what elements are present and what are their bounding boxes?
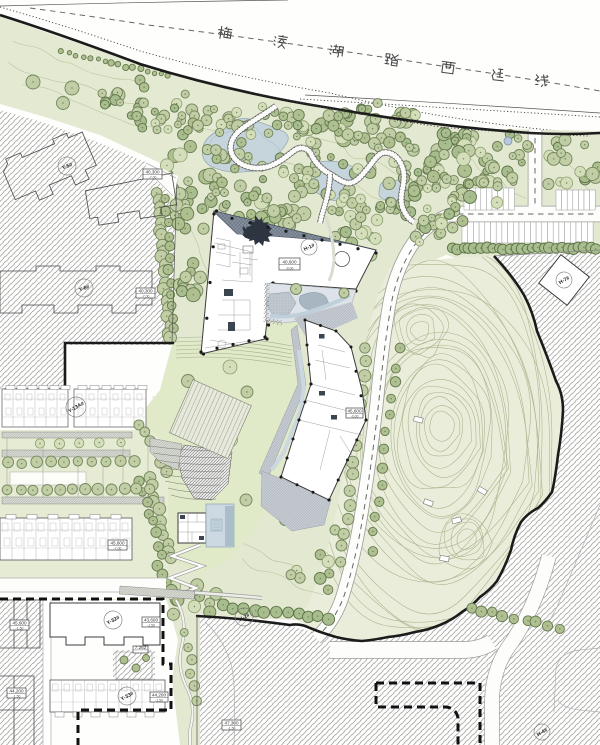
svg-text:-7.00: -7.00: [149, 176, 157, 180]
svg-text:47,300: 47,300: [224, 721, 238, 726]
svg-text:7.262: 7.262: [135, 645, 147, 650]
svg-text:-0.00: -0.00: [286, 266, 294, 270]
svg-text:-1.50: -1.50: [16, 627, 24, 631]
svg-text:44,200: 44,200: [9, 689, 23, 694]
svg-text:-1.50: -1.50: [13, 695, 21, 699]
svg-text:-7.00: -7.00: [114, 547, 122, 551]
svg-text:45,600: 45,600: [347, 409, 361, 414]
svg-text:-0.00: -0.00: [351, 415, 359, 419]
svg-text:45,600: 45,600: [12, 621, 26, 626]
svg-text:43,600: 43,600: [144, 618, 158, 623]
svg-text:40,600: 40,600: [282, 259, 296, 264]
svg-text:40,300: 40,300: [138, 289, 152, 294]
svg-text:-7.00: -7.00: [142, 295, 150, 299]
svg-text:44,200: 44,200: [152, 693, 166, 698]
svg-text:40,300: 40,300: [145, 170, 159, 175]
svg-text:45,600: 45,600: [110, 541, 124, 546]
svg-text:-1.50: -1.50: [147, 624, 155, 628]
svg-text:-1.50: -1.50: [155, 699, 163, 703]
